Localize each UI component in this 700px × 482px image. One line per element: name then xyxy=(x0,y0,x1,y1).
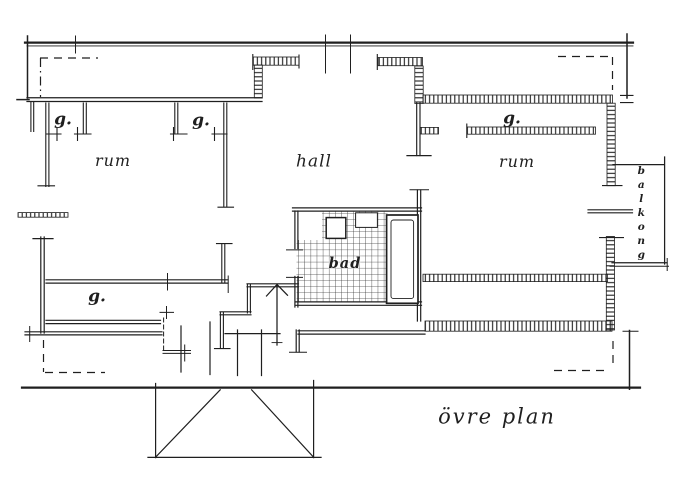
label-room-left: rum xyxy=(95,153,131,169)
label-bath: bad xyxy=(329,257,362,272)
label-closet-g-1: g. xyxy=(54,112,72,129)
bath-fixture xyxy=(356,213,378,228)
stairs xyxy=(181,244,299,376)
label-hall: hall xyxy=(296,154,332,171)
label-closet-g-3: g. xyxy=(503,111,521,128)
label-balcony: balkong xyxy=(636,165,647,263)
dormer-roof xyxy=(148,381,321,458)
label-room-right: rum xyxy=(499,154,535,170)
bath-sink xyxy=(326,218,346,239)
floor-plan-drawing xyxy=(0,0,700,482)
label-plan-title: övre plan xyxy=(438,407,556,428)
floor-plan-page: g. g. g. g. rum rum hall bad balkong övr… xyxy=(0,0,700,482)
stair-direction-arrow xyxy=(267,285,288,346)
label-closet-g-4: g. xyxy=(88,289,106,306)
label-closet-g-2: g. xyxy=(192,113,210,130)
left-rooms-walls xyxy=(25,237,228,361)
